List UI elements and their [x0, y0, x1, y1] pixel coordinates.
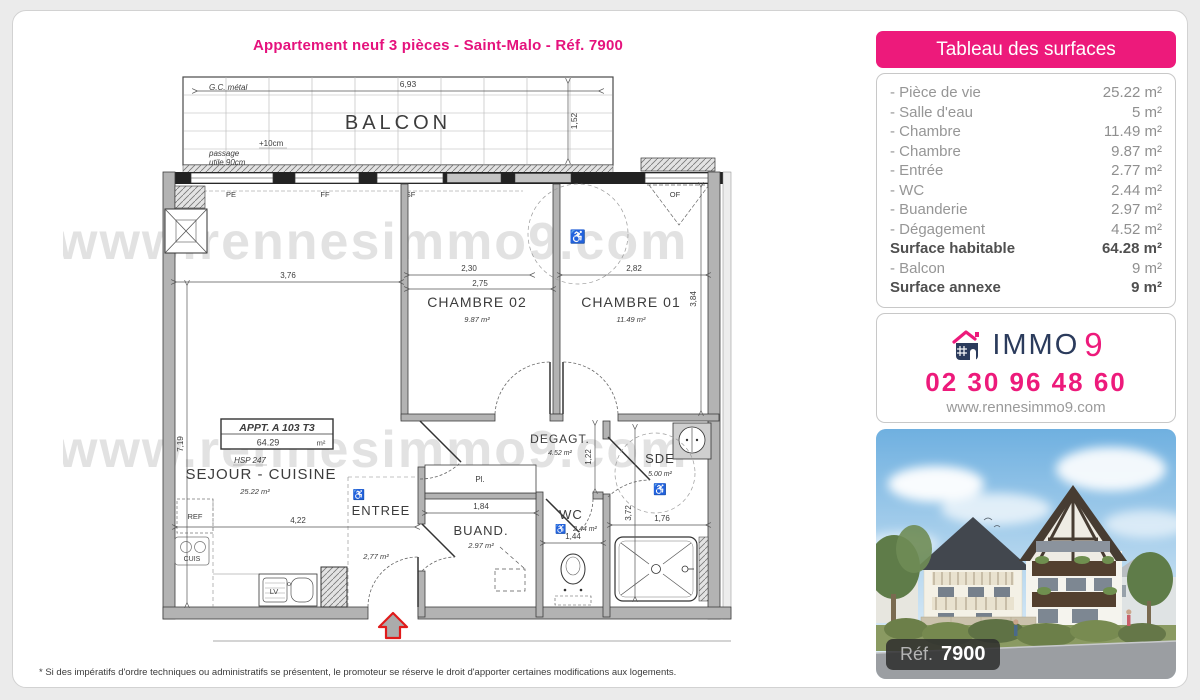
logo-text-immo: IMMO: [992, 329, 1079, 362]
dim-sejour-w: 3,76: [280, 271, 296, 280]
sink-label-lv: LV: [270, 587, 279, 596]
window-label-pe: PE: [226, 190, 236, 199]
svg-text:www.rennesimmo9.com: www.rennesimmo9.com: [63, 213, 688, 271]
room-label-entree: ENTREE: [352, 503, 411, 518]
agency-phone[interactable]: 02 30 96 48 60: [877, 367, 1175, 398]
dim-sde-w: 1,76: [654, 514, 670, 523]
disclaimer-text: * Si des impératifs d'ordre techniques o…: [39, 667, 676, 678]
building-photo: Réf. 7900: [876, 429, 1176, 679]
apartment-area: 64.29: [257, 438, 280, 448]
room-area-sde: 5.00 m²: [648, 471, 672, 478]
agency-logo: IMMO9: [877, 326, 1175, 364]
room-area-ch02: 9.87 m²: [464, 315, 490, 324]
note-plus10: +10cm: [259, 139, 284, 148]
ref-number: 7900: [941, 643, 986, 666]
dim-ch02-w1: 2,30: [461, 264, 477, 273]
balcony: 6,93 1,52 BALCON G.C. métal +10cm passag…: [183, 77, 613, 173]
surface-table: - Pièce de vie25.22 m² - Salle d'eau5 m²…: [876, 73, 1176, 308]
wheelchair-icon: ♿: [653, 483, 667, 496]
surface-row: - Dégagement4.52 m²: [890, 220, 1162, 240]
apartment-id: APPT. A 103 T3: [238, 422, 315, 434]
room-area-degagt: 4.52 m²: [548, 450, 572, 457]
main-card: Appartement neuf 3 pièces - Saint-Malo -…: [12, 10, 1188, 688]
apartment-area-unit: m²: [317, 439, 326, 448]
page: Appartement neuf 3 pièces - Saint-Malo -…: [0, 0, 1200, 700]
water-heater: [495, 569, 525, 591]
surface-table-header: Tableau des surfaces: [876, 31, 1176, 68]
note-passage-2: utile 90cm: [209, 158, 246, 167]
floor-plan: www.rennesimmo9.com www.rennesimmo9.com: [63, 69, 783, 669]
kitchen-column-hatch: [321, 567, 347, 607]
surface-row: - Buanderie2.97 m²: [890, 200, 1162, 220]
svg-text:www.rennesimmo9.com: www.rennesimmo9.com: [63, 421, 688, 479]
surface-row: - WC2.44 m²: [890, 181, 1162, 201]
dim-sde-h: 3,72: [624, 505, 633, 521]
dim-wc-w: 1,44: [565, 532, 581, 541]
dim-degagt-h: 1,22: [584, 449, 593, 465]
fridge-label: REF: [188, 512, 203, 521]
window-lintel-hatch: [641, 158, 715, 171]
dim-ch01-w: 2,82: [626, 264, 642, 273]
agency-website-link[interactable]: www.rennesimmo9.com: [877, 399, 1175, 416]
closet-label: Pl.: [475, 475, 484, 484]
entrance-arrow-icon: [379, 613, 407, 638]
surface-row: - Chambre11.49 m²: [890, 122, 1162, 142]
room-label-sde: SDE: [645, 451, 675, 466]
room-label-buand: BUAND.: [453, 523, 508, 538]
window-label-of: OF: [670, 190, 681, 199]
page-title: Appartement neuf 3 pièces - Saint-Malo -…: [68, 37, 808, 54]
reference-badge: Réf. 7900: [886, 639, 1000, 670]
wheelchair-icon: ♿: [353, 488, 365, 501]
dim-ch01-h: 3,84: [689, 291, 698, 307]
wall-return-hatch: [175, 186, 205, 208]
agency-panel: IMMO9 02 30 96 48 60 www.rennesimmo9.com: [876, 313, 1176, 423]
room-label-balcon: BALCON: [345, 112, 451, 134]
room-label-wc: WC: [559, 507, 583, 522]
surface-row-total-annexe: Surface annexe9 m²: [890, 278, 1162, 298]
wheelchair-icon: ♿: [570, 229, 586, 244]
note-gc-metal: G.C. métal: [209, 83, 247, 92]
house-logo-icon: [949, 328, 987, 362]
room-area-entree: 2,77 m²: [362, 552, 389, 561]
dim-ch02-w2: 2,75: [472, 279, 488, 288]
surface-row: - Salle d'eau5 m²: [890, 103, 1162, 123]
surface-row: - Chambre9.87 m²: [890, 142, 1162, 162]
dim-sejour-h: 7,19: [176, 436, 185, 452]
logo-digit-9: 9: [1084, 326, 1102, 364]
dim-balcony-width: 6,93: [400, 79, 417, 89]
surface-row: - Pièce de vie25.22 m²: [890, 83, 1162, 103]
room-label-ch02: CHAMBRE 02: [427, 294, 526, 310]
watermark-text: www.rennesimmo9.com www.rennesimmo9.com: [63, 213, 688, 479]
room-area-buand: 2.97 m²: [467, 541, 494, 550]
room-area-sejour: 25.22 m²: [239, 487, 270, 496]
surface-row-total-habitable: Surface habitable64.28 m²: [890, 239, 1162, 259]
cooktop-label: CUIS: [184, 556, 201, 563]
room-area-ch01: 11.49 m²: [616, 315, 646, 324]
dim-kitchen-w: 4,22: [290, 516, 306, 525]
note-passage: passage: [208, 149, 240, 158]
surface-row: - Entrée2.77 m²: [890, 161, 1162, 181]
hsp-note: HSP 247: [234, 456, 266, 465]
room-label-degagt: DEGAGT.: [530, 432, 590, 446]
room-area-wc: 2.44 m²: [572, 526, 597, 533]
dim-buand-w: 1,84: [473, 502, 489, 511]
surface-row: - Balcon9 m²: [890, 259, 1162, 279]
room-label-ch01: CHAMBRE 01: [581, 294, 680, 310]
dim-balcony-depth: 1,52: [569, 112, 579, 129]
window-label-ff: FF: [320, 190, 330, 199]
room-label-sejour: SEJOUR - CUISINE: [185, 466, 336, 483]
toilet: [561, 554, 585, 584]
ref-label: Réf.: [900, 644, 933, 665]
